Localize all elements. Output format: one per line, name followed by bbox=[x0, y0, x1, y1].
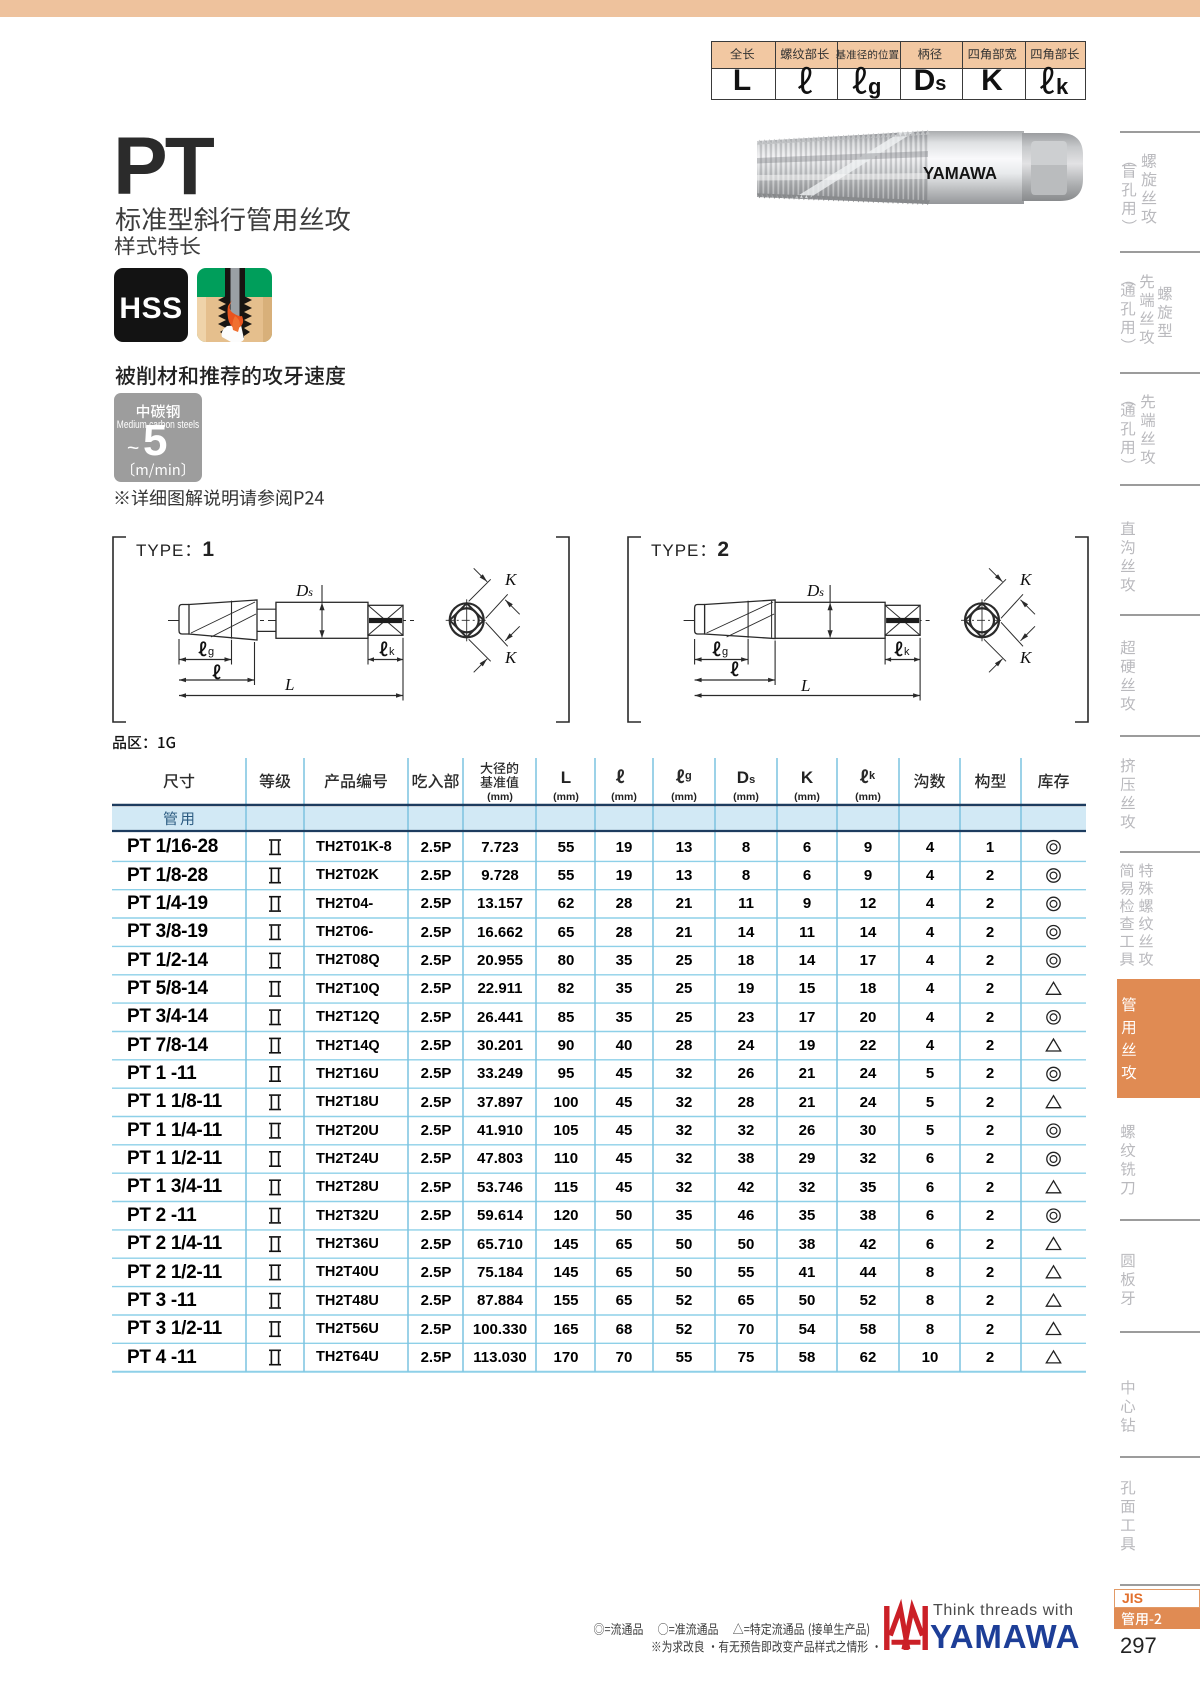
svg-text:YAMAWA: YAMAWA bbox=[923, 163, 997, 183]
